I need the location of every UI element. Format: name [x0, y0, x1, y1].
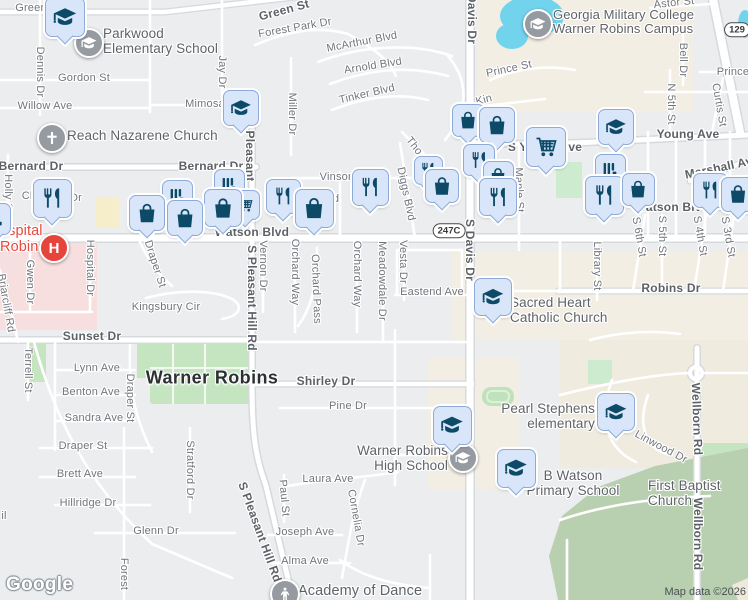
map-canvas[interactable]: Green StGreen StForest Park DrMcArthur B… — [0, 0, 748, 600]
road-network — [0, 0, 748, 600]
map-data-attribution: Map data ©2026 — [665, 586, 747, 598]
landuse-areas — [0, 0, 748, 600]
google-logo[interactable]: Google — [6, 574, 73, 596]
city-label: Warner Robins — [146, 368, 279, 389]
